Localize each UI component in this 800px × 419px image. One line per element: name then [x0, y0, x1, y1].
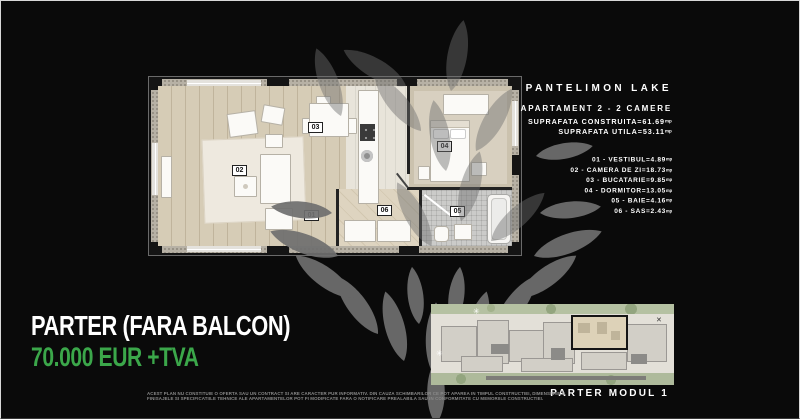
room-area-item: 05 - BAIE=4.16mp: [570, 196, 672, 206]
highlighted-module: [571, 315, 628, 350]
room-area-item: 04 - DORMITOR=13.05mp: [570, 186, 672, 196]
window-bottom: [187, 246, 261, 252]
room-area-item: 03 - BUCATARIE=9.85mp: [570, 176, 672, 186]
cross-marker-icon: ✕: [656, 317, 662, 324]
building-block: [461, 356, 503, 372]
roof-accent: [491, 344, 509, 354]
room-area-item: 06 - SAS=2.43mp: [570, 207, 672, 217]
built-area-line: SUPRAFATA CONSTRUITA=61.69mp: [528, 117, 672, 127]
armchair: [261, 104, 286, 126]
module-caption: PARTER MODUL 1: [550, 388, 669, 399]
usable-area-line: SUPRAFATA UTILA=53.11mp: [528, 127, 672, 137]
brochure-page: 01 02 03 04 05 06 PANTELIMON LAKE APARTA…: [0, 0, 800, 419]
apartment-subtitle: APARTAMENT 2 - 2 CAMERE: [521, 104, 672, 113]
grass-strip: [431, 304, 674, 314]
site-plan-thumbnail: ✳ ✳ ✕: [431, 304, 674, 385]
road-strip: [486, 376, 646, 380]
project-title: PANTELIMON LAKE: [526, 83, 672, 94]
price-heading: 70.000 EUR +TVA: [31, 342, 199, 373]
building-block: [521, 358, 573, 372]
roof-accent: [631, 354, 647, 364]
tree-marker-icon: ✳: [473, 308, 480, 316]
disclaimer-text: ACEST PLAN NU CONSTITUIE O OFERTA SAU UN…: [147, 391, 567, 401]
building-block: [581, 352, 627, 370]
area-summary: SUPRAFATA CONSTRUITA=61.69mp SUPRAFATA U…: [528, 117, 672, 137]
side-table: [265, 134, 283, 148]
floor-type-heading: PARTER (FARA BALCON): [31, 310, 290, 342]
roof-accent: [551, 348, 565, 360]
armchair: [226, 110, 258, 138]
room-area-item: 01 - VESTIBUL=4.89mp: [570, 155, 672, 165]
room-area-list: 01 - VESTIBUL=4.89mp02 - CAMERA DE ZI=18…: [570, 155, 672, 217]
disclaimer-wrap: ACEST PLAN NU CONSTITUIE O OFERTA SAU UN…: [147, 391, 567, 409]
room-area-item: 02 - CAMERA DE ZI=18.73mp: [570, 165, 672, 175]
room-label-02: 02: [232, 165, 247, 176]
coffee-table: [234, 176, 257, 197]
tv-unit: [161, 156, 172, 198]
tree-marker-icon: ✳: [436, 350, 443, 358]
